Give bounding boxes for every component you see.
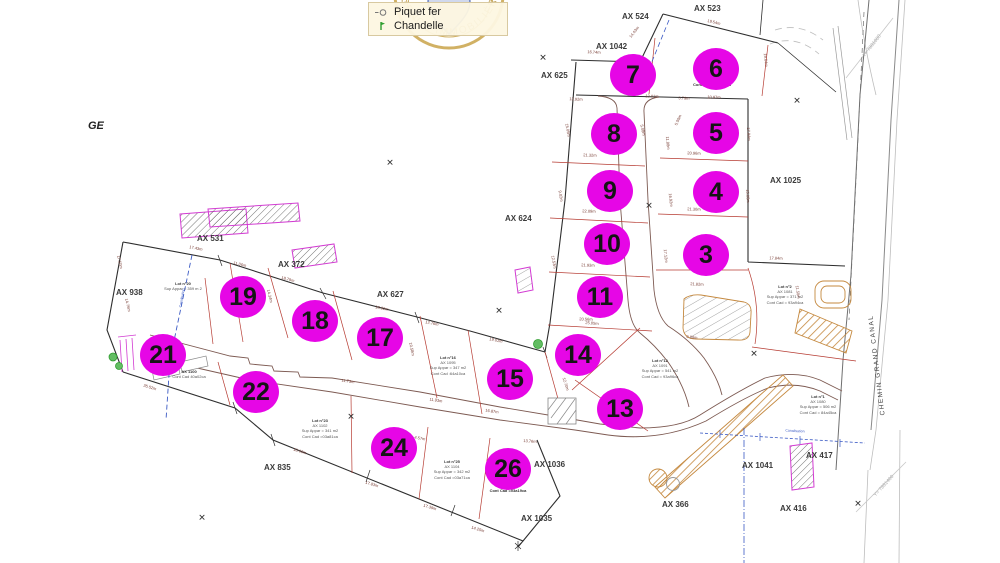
lot-marker-14[interactable]: 14 [555, 334, 601, 376]
lot-note-20: Lot n°20Sup Appar = 359 m 2 [164, 281, 202, 291]
x-mark: ✕ [750, 349, 758, 360]
x-mark: ✕ [645, 201, 653, 212]
parcel-label-ax-523: AX 523 [694, 4, 721, 13]
measurement: 21.32m [583, 152, 597, 157]
lot-marker-11[interactable]: 11 [577, 276, 623, 318]
parcel-label-ax-938: AX 938 [116, 288, 143, 297]
measurement: 3.79m [678, 95, 689, 100]
measurement: 9.88m [686, 334, 698, 340]
parcel-label-ax-366: AX 366 [662, 500, 689, 509]
lot-note-12: Lot n°12AX 1091 Sup Appar = 541 m2Cont C… [642, 358, 679, 379]
x-mark: ✕ [539, 53, 547, 64]
parcel-label-ax-625: AX 625 [541, 71, 568, 80]
lot-marker-7[interactable]: 7 [610, 54, 656, 96]
lot-marker-22[interactable]: 22 [233, 371, 279, 413]
legend-item-piquet: Piquet fer [375, 5, 501, 19]
lot-marker-13[interactable]: 13 [597, 388, 643, 430]
lot-marker-10[interactable]: 10 [584, 223, 630, 265]
boundary-lines [107, 0, 845, 551]
measurement: 15.08m [745, 189, 751, 203]
lot-marker-8[interactable]: 8 [591, 113, 637, 155]
x-mark: ✕ [347, 412, 355, 423]
parcel-label-ax-1042: AX 1042 [596, 42, 627, 51]
parcel-label-ax-1041: AX 1041 [742, 461, 773, 470]
lot-note-25: Lot n°25AX 1104 Sup Appar = 342 m2Cont C… [434, 459, 471, 480]
parcel-label-ax-416: AX 416 [780, 504, 807, 513]
lot-marker-24[interactable]: 24 [371, 427, 417, 469]
measurement: 25.05m [585, 320, 599, 326]
chemin-road-lines [833, 0, 899, 470]
lot-note-16: Lot n°16AX 1095 Sup Appar = 347 m2Cont C… [430, 355, 467, 376]
lot-marker-9[interactable]: 9 [587, 170, 633, 212]
lot-marker-15[interactable]: 15 [487, 358, 533, 400]
legend-item-chandelle: Chandelle [375, 19, 501, 33]
lot-marker-17[interactable]: 17 [357, 317, 403, 359]
lot-marker-5[interactable]: 5 [693, 112, 739, 154]
lot-note-23: Lot n°23AX 1102 Sup Appar = 341 m2Cont C… [302, 418, 339, 439]
measurement: 13.01m [645, 93, 659, 98]
parcel-label-ax-1025: AX 1025 [770, 176, 801, 185]
lot-marker-19[interactable]: 19 [220, 276, 266, 318]
x-mark: ✕ [854, 499, 862, 510]
parcel-label-ax-531: AX 531 [197, 234, 224, 243]
parcel-label-ax-1036: AX 1036 [534, 460, 565, 469]
subdivision-plan: AGENCE IMMOBILIÈRE Piquet fer Chandelle … [0, 0, 1000, 563]
zone-label: GE [88, 120, 104, 132]
measurement: 13.92m [569, 96, 583, 102]
lot-marker-6[interactable]: 6 [693, 48, 739, 90]
parcel-label-ax-835: AX 835 [264, 463, 291, 472]
lot-marker-4[interactable]: 4 [693, 171, 739, 213]
measurement: 22.09m [582, 208, 596, 213]
measurement: 13.76m [523, 438, 537, 444]
x-mark: ✕ [793, 96, 801, 107]
lot-marker-26[interactable]: 26 [485, 448, 531, 490]
pin-icon [375, 21, 388, 31]
measurement: 21.93m [581, 262, 595, 267]
measurement: 17.84m [769, 255, 783, 260]
parcel-label-ax-1035: AX 1035 [521, 514, 552, 523]
measurement: 10.97m [707, 94, 721, 99]
x-mark: ✕ [495, 306, 503, 317]
parcel-label-ax-624: AX 624 [505, 214, 532, 223]
parcel-label-ax-372: AX 372 [278, 260, 305, 269]
x-mark: ✕ [198, 513, 206, 524]
lot-marker-3[interactable]: 3 [683, 234, 729, 276]
lot-note-1: Lot n°1AX 1080 Sup Appar = 506 m2Cont Ca… [800, 394, 837, 415]
measurement: 21.82m [690, 281, 704, 287]
measurement: 17.84m [746, 127, 752, 141]
parcel-label-ax-417: AX 417 [806, 451, 833, 460]
legend-label: Chandelle [394, 20, 444, 32]
lot-marker-18[interactable]: 18 [292, 300, 338, 342]
survey-marker-icon [375, 8, 388, 17]
legend-label: Piquet fer [394, 6, 441, 18]
parcel-label-ax-627: AX 627 [377, 290, 404, 299]
x-mark: ✕ [386, 158, 394, 169]
legend-box: Piquet fer Chandelle [368, 2, 508, 36]
parcel-label-ax-524: AX 524 [622, 12, 649, 21]
measurement: 21.30m [687, 206, 701, 211]
measurement: 20.96m [687, 150, 701, 155]
lot-marker-21[interactable]: 21 [140, 334, 186, 376]
